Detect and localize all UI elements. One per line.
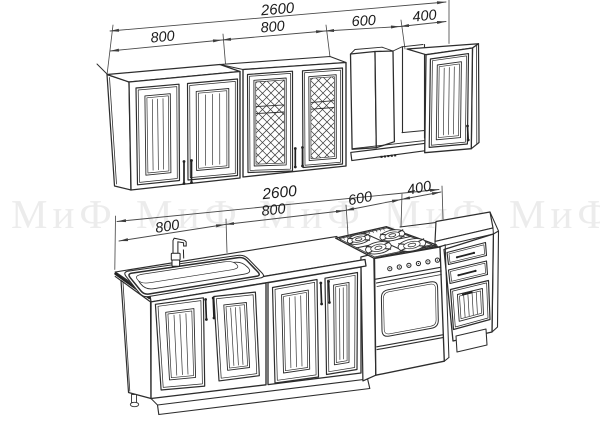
svg-text:МиФ: МиФ [11, 191, 117, 237]
svg-text:800: 800 [150, 28, 176, 46]
svg-text:400: 400 [412, 7, 438, 26]
svg-text:2600: 2600 [259, 0, 295, 19]
svg-text:800: 800 [260, 18, 286, 36]
svg-text:800: 800 [261, 201, 287, 220]
svg-text:600: 600 [351, 13, 376, 30]
svg-text:МиФ: МиФ [509, 191, 600, 237]
svg-text:2600: 2600 [261, 183, 298, 203]
